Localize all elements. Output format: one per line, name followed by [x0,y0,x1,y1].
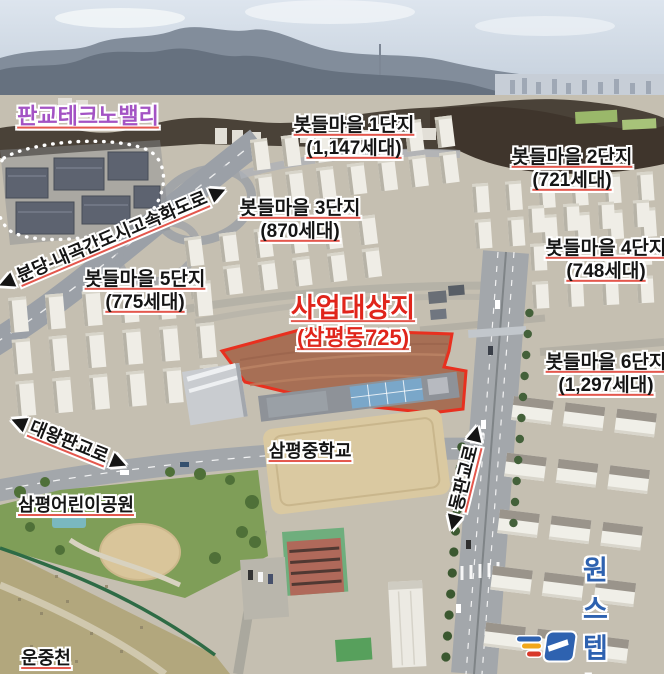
arrow-left-icon: ◀ [8,408,31,434]
logo-speed-lines [517,634,541,659]
complex-households: (1,147세대) [294,137,415,160]
site-label: 사업대상지 (삼평동725) [291,292,415,352]
school-text: 삼평중학교 [269,441,352,463]
watermark-text: 원스텝뉴스 [583,549,615,674]
complex-name: 봇들마을 1단지 [294,114,415,137]
complex-households: (1,297세대) [546,374,664,397]
complex-households: (775세대) [85,291,206,314]
logo-mark [542,630,578,662]
brick-building [282,528,348,596]
arrow-right-icon: ▶ [108,449,131,475]
onestep-news-logo-icon [517,630,576,662]
watermark: 원스텝뉴스 [517,549,615,674]
complex-households: (721세대) [512,169,633,192]
complex-label-3: 봇들마을 3단지 (870세대) [240,197,361,243]
park-text: 삼평어린이공원 [18,495,134,517]
complex-households: (748세대) [546,260,664,283]
arrow-down-icon: ◀ [440,512,465,532]
arrow-right-icon: ▶ [206,179,229,205]
complex-households: (870세대) [240,220,361,243]
complex-label-2: 봇들마을 2단지 (721세대) [512,146,633,192]
stream-text: 운중천 [21,648,71,670]
complex-label-4: 봇들마을 4단지 (748세대) [546,237,664,283]
tall-building [388,580,426,668]
stream-label: 운중천 [21,648,71,670]
aerial-news-image: 판교테크노밸리 ◀분당-내곡간도시고속화도로▶ 봇들마을 1단지 (1,147세… [0,0,664,674]
technovalley-text: 판교테크노밸리 [17,104,159,131]
complex-name: 봇들마을 2단지 [512,146,633,169]
complex-name: 봇들마을 4단지 [546,237,664,260]
park-label: 삼평어린이공원 [18,495,134,517]
complex-label-6: 봇들마을 6단지 (1,297세대) [546,351,664,397]
complex-name: 봇들마을 3단지 [240,197,361,220]
complex-label-5: 봇들마을 5단지 (775세대) [85,268,206,314]
site-title-text: 사업대상지 [291,292,415,325]
site-subtitle-text: (삼평동725) [291,325,415,352]
complex-label-1: 봇들마을 1단지 (1,147세대) [294,114,415,160]
school-label: 삼평중학교 [269,441,352,463]
arrow-up-icon: ▶ [462,423,487,443]
technovalley-label: 판교테크노밸리 [17,104,159,131]
complex-name: 봇들마을 6단지 [546,351,664,374]
school-gym [182,363,248,425]
complex-name: 봇들마을 5단지 [85,268,206,291]
